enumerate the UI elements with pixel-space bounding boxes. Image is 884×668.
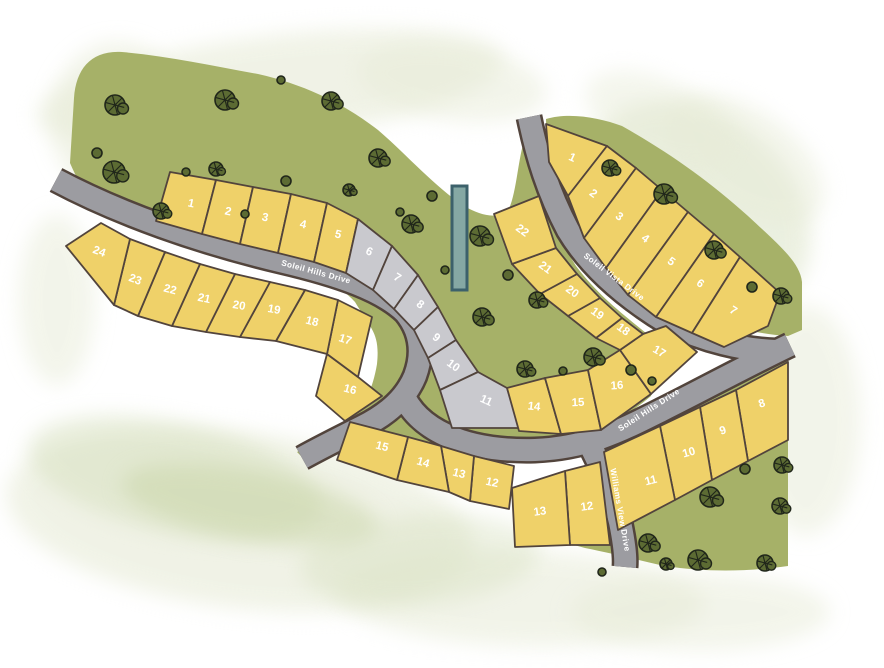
lot-east-13[interactable]: 13 <box>512 471 570 547</box>
marker-layer <box>452 186 467 290</box>
tree-icon <box>277 76 285 84</box>
tree-icon <box>92 148 102 158</box>
tree-icon <box>441 266 449 274</box>
plat-map-page: 1234567891011121314151617181920212223241… <box>0 0 884 668</box>
lot-number: 13 <box>533 505 547 519</box>
tree-icon <box>626 365 636 375</box>
tree-icon <box>648 377 656 385</box>
tree-icon <box>427 191 437 201</box>
tree-icon <box>503 270 513 280</box>
watercolor-wash <box>570 574 830 650</box>
lot-number: 15 <box>571 397 585 409</box>
lot-west-12[interactable]: 12 <box>470 456 514 509</box>
tree-icon <box>740 464 750 474</box>
lot-number: 19 <box>267 303 282 317</box>
tree-icon <box>747 282 757 292</box>
lot-number: 20 <box>232 299 247 313</box>
tree-icon <box>598 568 606 576</box>
lot-number: 16 <box>610 380 624 393</box>
lot-number: 12 <box>580 500 594 514</box>
plat-map: 1234567891011121314151617181920212223241… <box>0 0 884 668</box>
tree-icon <box>396 208 404 216</box>
lot-number: 14 <box>527 400 542 413</box>
teal-site-marker <box>452 186 467 290</box>
tree-icon <box>182 168 190 176</box>
tree-icon <box>281 176 291 186</box>
tree-icon <box>241 210 249 218</box>
tree-icon <box>559 367 567 375</box>
